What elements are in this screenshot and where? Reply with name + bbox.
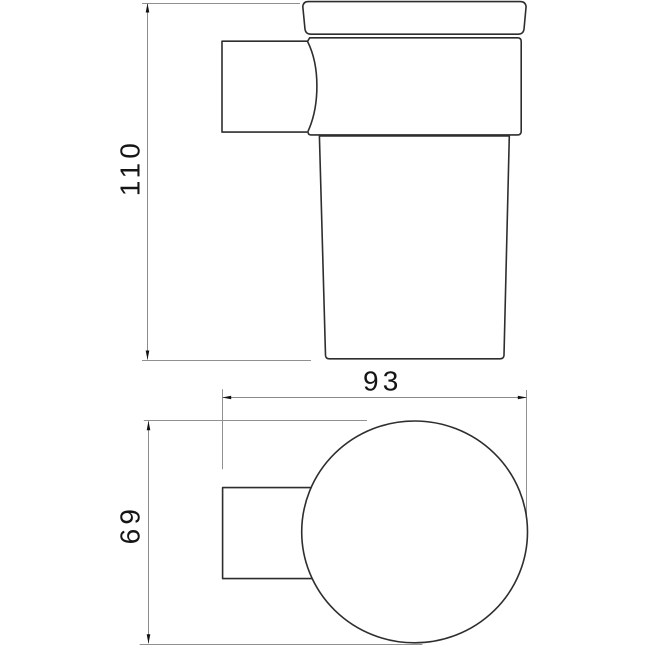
svg-text:93: 93 xyxy=(363,365,403,396)
svg-text:69: 69 xyxy=(115,505,146,545)
svg-text:110: 110 xyxy=(115,139,146,196)
